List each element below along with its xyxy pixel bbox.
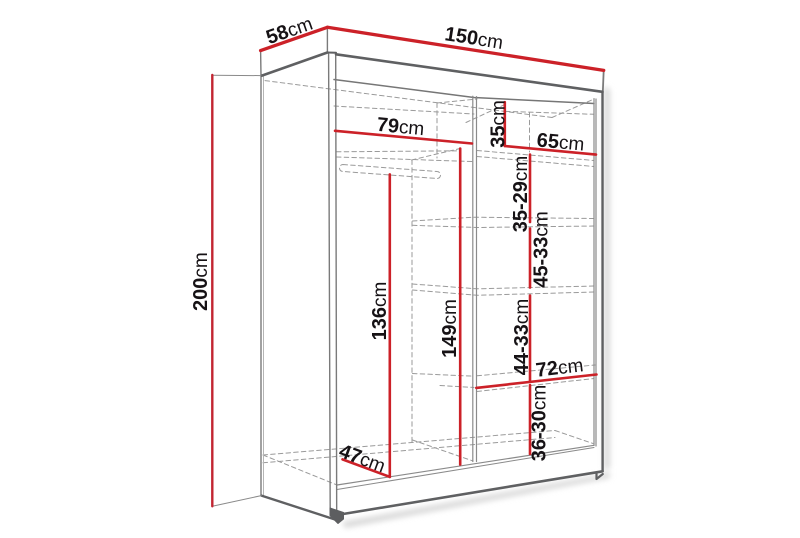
- svg-text:36-30cm: 36-30cm: [529, 385, 551, 461]
- svg-text:44-33cm: 44-33cm: [511, 299, 533, 375]
- svg-text:136cm: 136cm: [369, 282, 391, 341]
- svg-text:200cm: 200cm: [190, 252, 212, 311]
- svg-text:45-33cm: 45-33cm: [531, 211, 553, 287]
- svg-text:79cm: 79cm: [376, 114, 425, 140]
- svg-text:65cm: 65cm: [536, 129, 585, 155]
- svg-text:35cm: 35cm: [488, 100, 510, 148]
- svg-text:35-29cm: 35-29cm: [510, 156, 532, 232]
- svg-text:149cm: 149cm: [439, 299, 461, 358]
